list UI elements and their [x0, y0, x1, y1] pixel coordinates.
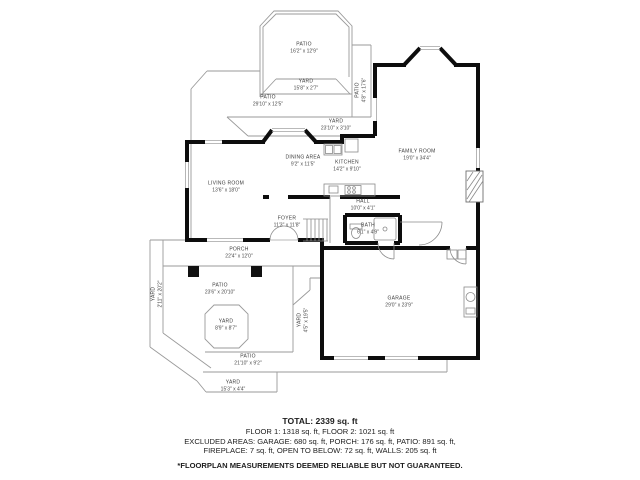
total-area-text: TOTAL: 2339 sq. ft — [0, 417, 640, 427]
room-label: YARD2'11" x 20'2" — [151, 280, 164, 307]
excluded-areas-text-2: FIREPLACE: 7 sq. ft, OPEN TO BELOW: 72 s… — [0, 446, 640, 456]
room-dimensions: 6'1" x 4'9" — [357, 229, 379, 236]
room-dimensions: 19'0" x 34'4" — [398, 155, 435, 162]
room-label: YARD15'8" x 2'7" — [294, 79, 319, 92]
room-label: PATIO29'10" x 12'5" — [253, 95, 283, 108]
room-label: BATH6'1" x 4'9" — [357, 223, 379, 236]
room-label: PORCH22'4" x 12'0" — [225, 247, 252, 260]
room-dimensions: 15'3" x 4'4" — [221, 386, 246, 393]
excluded-areas-text-1: EXCLUDED AREAS: GARAGE: 680 sq. ft, PORC… — [0, 437, 640, 447]
room-dimensions: 29'10" x 12'5" — [253, 101, 283, 108]
room-dimensions: 11'3" x 11'8" — [274, 222, 301, 229]
room-label: PATIO23'6" x 20'10" — [205, 283, 235, 296]
room-dimensions: 22'4" x 12'0" — [225, 253, 252, 260]
room-dimensions: 21'10" x 9'2" — [234, 360, 261, 367]
room-dimensions: 10'0" x 4'1" — [351, 205, 376, 212]
room-label: HALL10'0" x 4'1" — [351, 199, 376, 212]
disclaimer-text: *FLOORPLAN MEASUREMENTS DEEMED RELIABLE … — [0, 461, 640, 471]
floorplan-labels: PATIO16'2" x 12'9"YARD15'8" x 2'7"PATIO2… — [0, 0, 640, 420]
room-name: FAMILY ROOM — [398, 149, 435, 156]
room-dimensions: 4'5" x 19'5" — [303, 308, 310, 333]
room-dimensions: 23'10" x 3'10" — [321, 125, 351, 132]
room-label: PATIO21'10" x 9'2" — [234, 354, 261, 367]
area-summary: TOTAL: 2339 sq. ft FLOOR 1: 1318 sq. ft,… — [0, 417, 640, 471]
room-label: DINING AREA9'2" x 11'5" — [286, 155, 321, 168]
room-name: LIVING ROOM — [208, 181, 244, 188]
room-label: YARD8'9" x 8'7" — [215, 319, 237, 332]
room-label: GARAGE29'0" x 23'9" — [385, 296, 412, 309]
room-dimensions: 16'2" x 12'9" — [290, 48, 317, 55]
room-dimensions: 8'9" x 8'7" — [215, 325, 237, 332]
room-dimensions: 2'11" x 20'2" — [157, 280, 164, 307]
room-dimensions: 15'8" x 2'7" — [294, 85, 319, 92]
room-label: KITCHEN14'2" x 9'10" — [333, 160, 360, 173]
room-label: LIVING ROOM13'6" x 18'0" — [208, 181, 244, 194]
room-dimensions: 9'2" x 11'5" — [286, 161, 321, 168]
room-dimensions: 13'6" x 18'0" — [208, 187, 244, 194]
room-label: YARD4'5" x 19'5" — [297, 308, 310, 333]
room-label: YARD23'10" x 3'10" — [321, 119, 351, 132]
room-label: PATIO4'8" x 17'6" — [355, 78, 368, 103]
room-name: KITCHEN — [333, 160, 360, 167]
room-label: FAMILY ROOM19'0" x 34'4" — [398, 149, 435, 162]
room-label: PATIO16'2" x 12'9" — [290, 42, 317, 55]
room-name: DINING AREA — [286, 155, 321, 162]
room-dimensions: 14'2" x 9'10" — [333, 166, 360, 173]
room-dimensions: 29'0" x 23'9" — [385, 302, 412, 309]
room-name: PORCH — [225, 247, 252, 254]
room-label: FOYER11'3" x 11'8" — [274, 216, 301, 229]
floorplan-page: PATIO16'2" x 12'9"YARD15'8" x 2'7"PATIO2… — [0, 0, 640, 480]
room-dimensions: 4'8" x 17'6" — [361, 78, 368, 103]
room-name: FOYER — [274, 216, 301, 223]
room-label: YARD15'3" x 4'4" — [221, 380, 246, 393]
room-dimensions: 23'6" x 20'10" — [205, 289, 235, 296]
room-name: GARAGE — [385, 296, 412, 303]
floors-area-text: FLOOR 1: 1318 sq. ft, FLOOR 2: 1021 sq. … — [0, 427, 640, 437]
